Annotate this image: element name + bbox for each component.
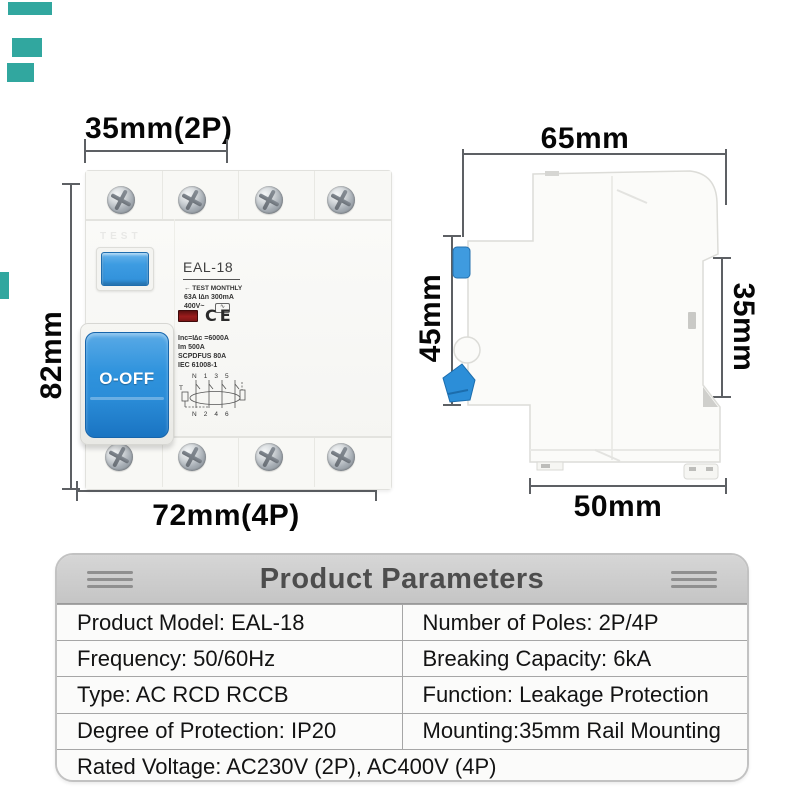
screw-terminal [178,186,206,214]
pole-divider [314,438,315,487]
screw-terminal [255,443,283,471]
screw-terminal [105,443,133,471]
dimension-line [462,153,727,155]
table-row: Degree of Protection: IP20 Mounting:35mm… [57,713,747,749]
dimension-line [84,150,228,152]
screw-terminal [327,186,355,214]
emboss-text: TEST [100,231,142,242]
table-row: Rated Voltage: AC230V (2P), AC400V (4P) [57,749,747,782]
test-monthly-label: ← TEST MONTHLY [184,285,242,292]
toggle-label: O-OFF [86,369,168,389]
param-breaking-capacity: Breaking Capacity: 6kA [402,641,748,676]
dimension-line [530,485,727,487]
din-catch-slope [703,387,718,407]
param-product-model: Product Model: EAL-18 [57,605,402,640]
breaker-side-view [440,168,732,483]
dimension-line [70,184,72,490]
test-button-side [453,247,470,278]
dimension-label-width-2p: 35mm(2P) [85,112,230,146]
product-parameters-table: Product Parameters Product Model: EAL-18… [55,553,749,782]
spec-line: SCPDFUS 80A [178,353,226,360]
toggle-switch-frame: O-OFF [80,323,174,445]
edge-artifact [0,272,9,299]
dimension-label-base-depth: 50mm [558,490,678,524]
toggle-ridge [90,397,164,400]
param-degree-of-protection: Degree of Protection: IP20 [57,714,402,749]
foot-detail [689,467,696,471]
table-header: Product Parameters [57,555,747,604]
foot-detail [706,467,713,471]
toggle-switch: O-OFF [85,332,169,438]
spec-line: Im 500A [178,344,205,351]
dimension-label-height: 82mm [34,285,70,425]
dimension-label-width-4p: 72mm(4P) [146,499,306,533]
foot-detail [541,464,550,468]
breaker-front-view: TEST O-OFF EAL-18 ← TEST MONTHLY 63A I∆n… [85,170,392,490]
ce-mark: CE [205,306,234,325]
table-row: Frequency: 50/60Hz Breaking Capacity: 6k… [57,640,747,676]
wiring-diagram: N 1 3 5 N 2 4 6 T [178,370,256,418]
pole-divider [162,171,163,219]
dimension-tick [62,183,80,185]
trip-indicator [178,310,198,322]
diagram-top-label: N 1 3 5 [192,373,231,380]
param-type: Type: AC RCD RCCB [57,677,402,712]
spec-line: IEC 61008-1 [178,362,217,369]
dimension-tick [84,139,86,163]
model-underline [183,279,240,280]
menu-lines-icon [671,567,717,592]
test-button-bezel [96,247,154,291]
side-profile-outline [468,171,720,462]
menu-lines-icon [87,567,133,592]
voltage-label: 400V~ [184,303,204,310]
test-button [101,252,149,286]
mounting-foot [684,464,718,479]
table-title: Product Parameters [260,563,545,596]
pole-divider [162,438,163,487]
param-frequency: Frequency: 50/60Hz [57,641,402,676]
dimension-line [76,490,377,492]
edge-artifact [8,2,52,15]
screw-terminal [107,186,135,214]
edge-artifact [7,63,34,82]
top-vent-slot [545,171,559,176]
pole-divider [238,171,239,219]
rail-slot [688,312,696,329]
dimension-label-depth: 65mm [520,122,650,156]
param-rated-voltage: Rated Voltage: AC230V (2P), AC400V (4P) [57,750,747,782]
dimension-tick [226,139,228,163]
param-function: Function: Leakage Protection [402,677,748,712]
pole-divider [314,171,315,219]
dimension-tick [76,481,78,501]
diagram-test-label: T [179,385,183,392]
screw-terminal [327,443,355,471]
diagram-bottom-label: N 2 4 6 [192,411,231,418]
param-number-of-poles: Number of Poles: 2P/4P [402,605,748,640]
screw-terminal [178,443,206,471]
model-label: EAL-18 [183,259,233,275]
product-spec-image: 35mm(2P) 82mm 72mm(4P) TEST [0,0,800,800]
table-row: Type: AC RCD RCCB Function: Leakage Prot… [57,676,747,712]
table-row: Product Model: EAL-18 Number of Poles: 2… [57,604,747,640]
edge-artifact [12,38,42,57]
pole-divider [238,438,239,487]
rating-label: 63A I∆n 300mA [184,294,234,301]
spec-line: Inc=I∆c =6000A [178,335,229,342]
param-mounting: Mounting:35mm Rail Mounting [402,714,748,749]
case-seam [174,219,175,436]
screw-terminal [255,186,283,214]
toggle-pivot-bump [454,337,480,363]
